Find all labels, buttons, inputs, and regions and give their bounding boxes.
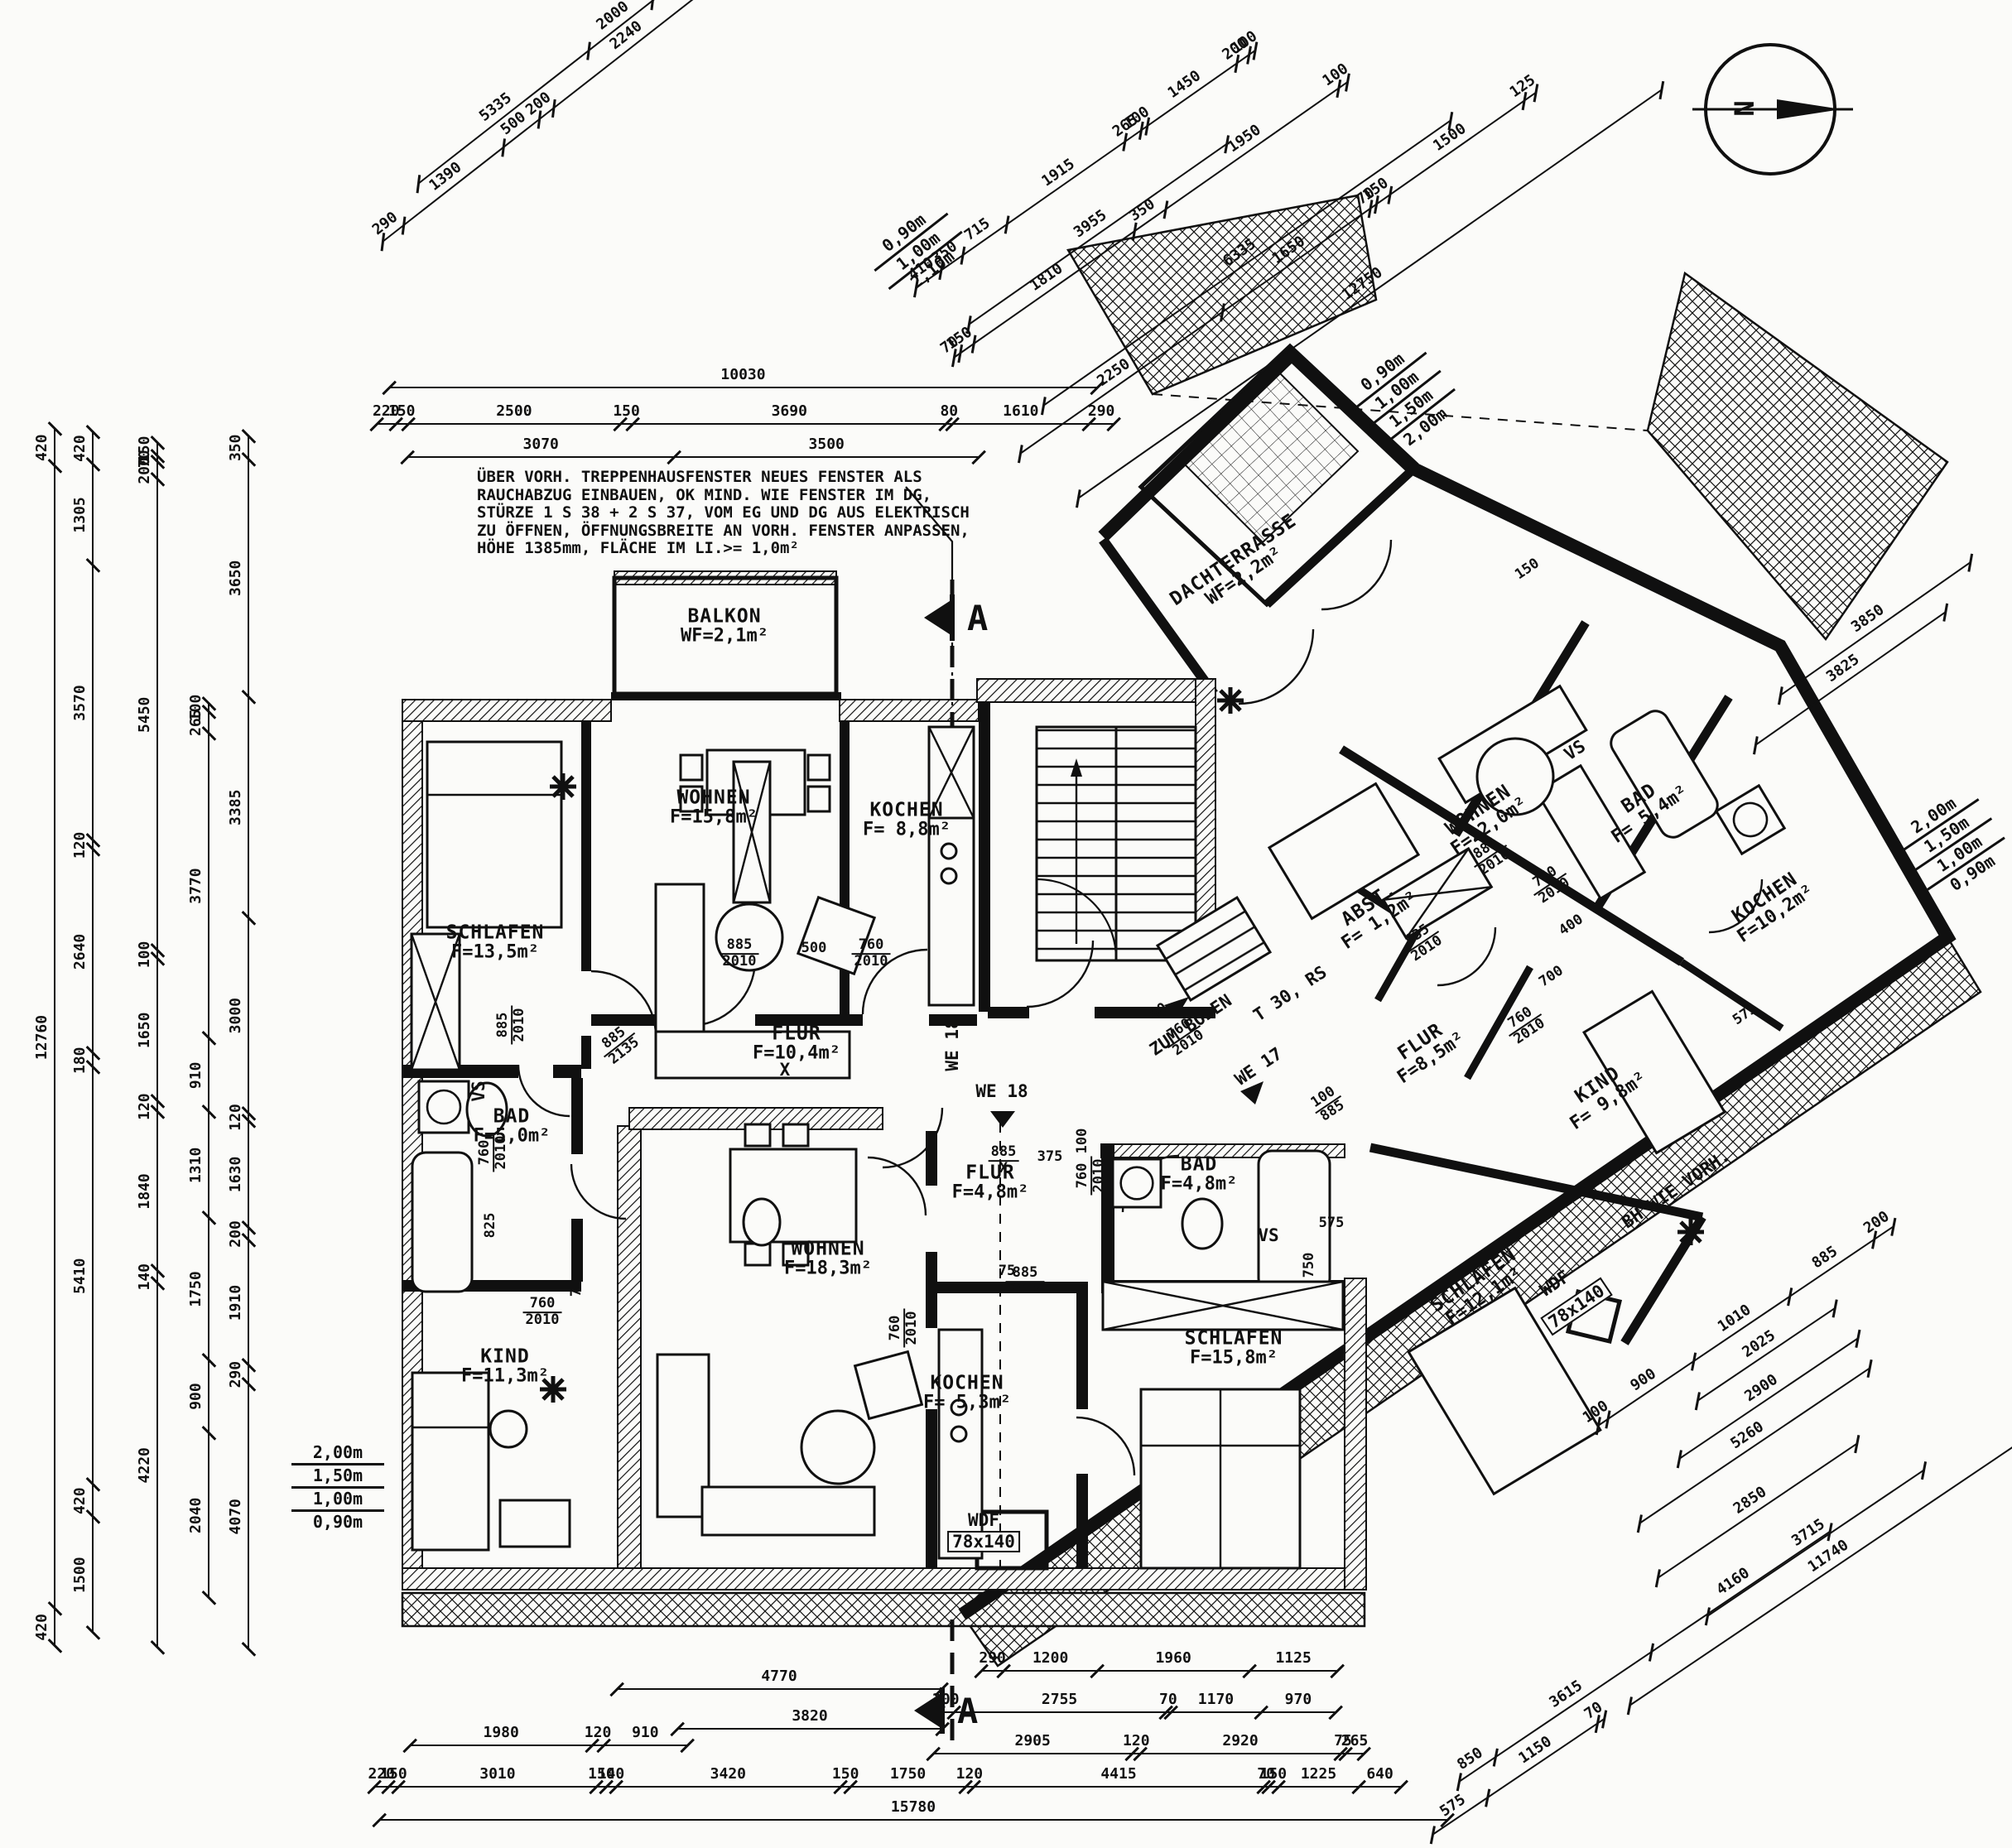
dim-value: 910 [604,1724,687,1741]
dim-chain-rrc1: 3850 [1780,562,1970,695]
dim-value: 1125 [1249,1649,1337,1667]
room-name: BALKON [681,606,768,626]
dim-value: 3820 [677,1707,942,1725]
dim-value: 265 [1321,1732,1388,1749]
door-dim-f32: 150 [1511,555,1544,584]
dim-value: 2500 [408,402,620,420]
door-dim-f27: 100885 [1307,1083,1350,1126]
dim-value: 3570 [71,565,89,841]
room-name: SCHLAFEN [1185,1328,1283,1348]
annotation-layer: ÜBER VORH. TREPPENHAUSFENSTER NEUES FENS… [0,0,2012,1848]
label-wdf1: WDF [968,1511,999,1529]
room-name: BAD [474,1106,551,1126]
dim-value: 1200 [1004,1649,1097,1667]
door-dim-f8: 7602010 [523,1297,562,1328]
dim-value: 3000 [227,918,244,1114]
height-stack-terrace: 0,90m1,00m2,10m [861,196,975,306]
dim-value: 100 [1303,49,1368,101]
dim-value: 100 [1212,17,1277,69]
room-label-flur3: FLURF=8,5m² [1383,1012,1468,1087]
room-label-wohnen2: WOHNENF=18,3m² [784,1239,872,1278]
dim-value: 3010 [398,1765,596,1783]
dim-value: 3650 [227,460,244,697]
room-area: F=15,8m² [670,808,758,827]
dim-value: 3385 [227,697,244,918]
door-dim-f9: 75 [570,1278,585,1299]
room-name: KOCHEN [863,800,951,820]
dim-value: 150 [136,416,153,483]
door-dim-f1: 8852010 [720,938,759,970]
door-dim-f4: 8852135 [594,1021,644,1070]
dim-value: 350 [227,415,244,481]
note-line: HÖHE 1385mm, FLÄCHE IM LI.>= 1,0m² [477,540,974,558]
room-name: SCHLAFEN [446,922,545,942]
room-name: WOHNEN [784,1239,872,1258]
note-line: STÜRZE 1 S 38 + 2 S 37, VOM EG UND DG AU… [477,504,974,522]
note-line: RAUCHABZUG EINBAUEN, OK MIND. WIE FENSTE… [477,487,974,505]
door-dim-f13: 7602010 [1076,1157,1107,1196]
dim-value: 3825 [1743,594,1942,742]
height-value: 1,50m [291,1465,384,1489]
label-wdf1_size: 78x140 [947,1531,1020,1552]
dim-value: 12760 [33,466,51,1608]
door-dim-f24: 700 [1535,962,1568,991]
dim-value: 3420 [616,1765,841,1783]
section-label-top: A [967,598,988,638]
north-label: N [1728,100,1759,116]
dim-value: 970 [1261,1691,1336,1708]
dim-value: 1170 [1171,1691,1261,1708]
label-x_mark1: X [780,1061,791,1079]
room-name: WOHNEN [670,787,758,807]
label-vs2: VS [1258,1226,1278,1244]
dim-chain-brc6: 3715 [1707,1470,1923,1616]
label-we18v: WE 18 [943,1018,961,1071]
door-dim-f6: 7602010 [478,1133,509,1172]
door-dim-f23: 6352010 [1398,918,1447,966]
dim-value: 12750 [1066,72,1659,494]
label-wdf2: WDF [1537,1267,1573,1299]
room-label-schlafen3: SCHLAFENF=12,1m² [1427,1244,1531,1332]
dim-value: 3770 [187,734,205,1039]
height-stack-left: 2,00m1,50m1,00m0,90m [291,1442,384,1533]
dim-value: 4070 [227,1384,244,1649]
dim-value: 4770 [617,1668,941,1685]
dim-value: 2040 [187,1433,205,1598]
door-dim-f3: 7602010 [852,938,891,970]
dim-value: 1310 [187,1112,205,1218]
height-stack-outer_right: 2,00m1,50m1,00m0,90m [1889,781,2012,907]
room-area: WF=2,1m² [681,627,768,646]
dim-value: 10030 [389,366,1097,383]
room-area: F=10,4m² [753,1044,840,1063]
label-we18: WE 18 [975,1082,1028,1100]
door-dim-f25: 7602010 [1500,1001,1550,1049]
label-vs1: VS [469,1080,488,1101]
room-label-flur1: FLURF=10,4m² [753,1023,840,1062]
dim-value: 1500 [71,1517,89,1633]
room-area: F=13,5m² [446,943,545,962]
room-area: F=4,8m² [1161,1175,1238,1194]
door-dim-f11: 375 [1035,1150,1066,1165]
dim-value: 1960 [1097,1649,1249,1667]
door-dim-f31: 575 [1729,1000,1762,1029]
note-line: ZU ÖFFNEN, ÖFFNUNGSBREITE AN VORH. FENST… [477,522,974,541]
floorplan-sheet: ÜBER VORH. TREPPENHAUSFENSTER NEUES FENS… [0,0,2012,1848]
label-bh_wie_vorh: BH WIE VORH. [1619,1146,1733,1231]
dim-value: 1010 [1682,1278,1788,1358]
dim-chain-brc8: 85036154160 [1459,1532,1830,1782]
dim-value: 3070 [407,436,674,453]
room-name: BAD [1161,1154,1238,1174]
label-we17: WE 17 [1232,1044,1286,1089]
dim-value: 2755 [954,1691,1166,1708]
room-label-schlafen2: SCHLAFENF=15,8m² [1185,1328,1283,1367]
dim-value: 900 [1596,1344,1691,1416]
dim-value: 2905 [933,1732,1132,1749]
dim-value: 15780 [379,1798,1447,1816]
room-area: F=18,3m² [784,1259,872,1278]
room-name: KIND [461,1346,549,1366]
door-dim-f18: 750 [1302,1250,1317,1281]
door-dim-f17: 575 [1316,1216,1347,1231]
dim-value: 3690 [633,402,946,420]
room-label-balkon: BALKONWF=2,1m² [681,606,768,645]
dim-value: 2640 [71,849,89,1053]
height-stack-top_right: 0,90m1,00m1,50m2,00m [1340,335,1468,464]
door-dim-f12: 100 [1076,1126,1090,1157]
dim-value: 420 [33,415,51,481]
room-label-kind1: KINDF=11,3m² [461,1346,549,1385]
dim-value: 910 [187,1038,205,1112]
door-dim-f15: 75 [996,1264,1018,1279]
room-label-kind2: KINDF= 9,8m² [1556,1052,1650,1133]
room-label-dachterrasse: DACHTERRASSEWF=2,2m² [1167,511,1311,626]
room-name: FLUR [753,1023,840,1043]
room-area: F=11,3m² [461,1367,549,1386]
door-dim-f28: 80 [1146,999,1172,1024]
door-dim-f7: 825 [484,1210,498,1241]
room-label-kochen3: KOCHENF=10,2m² [1723,865,1817,946]
height-value: 0,90m [291,1512,384,1533]
dim-value: 200 [1844,1196,1909,1248]
dim-value: 3500 [674,436,979,453]
door-dim-f26: 400 [1555,911,1588,940]
door-dim-f16: 7602010 [888,1309,920,1348]
dim-value: 640 [1359,1765,1401,1783]
dim-value: 1225 [1278,1765,1359,1783]
room-label-kochen1: KOCHENF= 8,8m² [863,800,951,839]
room-area: F=15,8m² [1185,1349,1283,1368]
construction-note: ÜBER VORH. TREPPENHAUSFENSTER NEUES FENS… [477,469,974,558]
room-label-kochen2: KOCHENF= 5,3m² [923,1373,1011,1412]
note-line: ÜBER VORH. TREPPENHAUSFENSTER NEUES FENS… [477,469,974,487]
room-area: F=4,8m² [952,1183,1029,1202]
dim-value: 4220 [136,1283,153,1648]
label-vs3: VS [1561,737,1588,763]
room-name: KOCHEN [923,1373,1011,1393]
door-dim-f5: 8852010 [496,1006,527,1045]
label-t30rs: T 30, RS [1250,963,1330,1025]
dim-value: 5335 [405,34,586,180]
dim-value: 4415 [974,1765,1264,1783]
height-value: 2,00m [291,1442,384,1465]
dim-value: 5450 [136,479,153,950]
room-label-schlafen1: SCHLAFENF=13,5m² [446,922,545,961]
room-label-bad2: BADF=4,8m² [1161,1154,1238,1193]
door-dim-f10: 885X [989,1145,1019,1177]
room-area: F= 8,8m² [863,821,951,840]
room-label-wohnen1: WOHNENF=15,8m² [670,787,758,826]
door-dim-f2: 500 [799,941,830,956]
dim-value: 5410 [71,1067,89,1485]
height-value: 1,00m [291,1489,384,1512]
room-area: F= 5,3m² [923,1393,1011,1412]
door-dim-f22: 7602010 [1525,860,1575,908]
dim-value: 1750 [187,1218,205,1360]
dim-value: 100 [187,675,205,741]
dim-value: 900 [187,1360,205,1433]
room-label-bad3: BADF= 5,4m² [1597,766,1692,847]
